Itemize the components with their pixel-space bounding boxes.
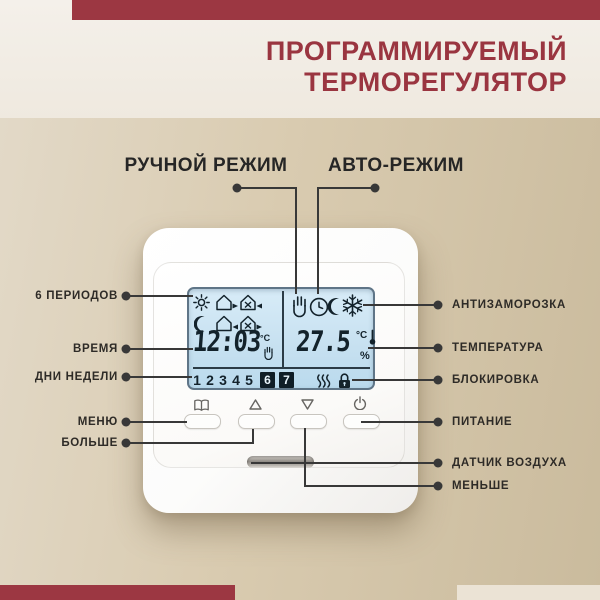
callout-dot-decrease <box>434 482 443 491</box>
lcd-display: 12:03 °C 27.5 °C <box>187 287 375 390</box>
percent-sign: % <box>360 350 370 362</box>
label-lock: БЛОКИРОВКА <box>452 373 539 387</box>
page-title-line2: ТЕРМОРЕГУЛЯТОР <box>266 67 567 98</box>
callout-dot-antifreeze <box>434 301 443 310</box>
thermometer-icon <box>369 329 376 346</box>
callout-dot-air-sensor <box>434 459 443 468</box>
lock-icon <box>337 372 352 389</box>
house-enter-x-icon <box>239 294 263 311</box>
bottom-cream-bar <box>457 585 600 600</box>
label-decrease: МЕНЬШЕ <box>452 479 509 493</box>
callout-dot-manual-mode <box>233 184 242 193</box>
time-readout: 12:03 <box>192 326 262 357</box>
label-weekdays: ДНИ НЕДЕЛИ <box>35 370 118 384</box>
heating-waves-icon <box>315 373 331 388</box>
increase-button[interactable] <box>238 414 275 429</box>
callout-dot-menu <box>122 418 131 427</box>
weekday-5: 5 <box>243 372 255 388</box>
callout-dot-6-periods <box>122 292 131 301</box>
label-menu: МЕНЮ <box>78 415 118 429</box>
label-time: ВРЕМЯ <box>73 342 118 356</box>
callout-dot-weekdays <box>122 373 131 382</box>
arrow-up-icon <box>249 399 262 410</box>
house-exit-icon <box>215 294 239 311</box>
label-auto-mode: АВТО-РЕЖИМ <box>296 155 496 177</box>
callout-dot-time <box>122 345 131 354</box>
callout-dot-increase <box>122 439 131 448</box>
lcd-divider-line <box>282 291 284 367</box>
infographic-page: { "header": { "title_line1": "ПРОГРАММИР… <box>0 0 600 600</box>
air-sensor-slot <box>247 456 314 468</box>
weekday-6-active: 6 <box>260 372 275 388</box>
weekday-2: 2 <box>204 372 216 388</box>
time-unit: °C <box>260 333 270 343</box>
lcd-separator-line <box>193 367 370 369</box>
snowflake-antifreeze-icon <box>341 294 364 317</box>
page-title: ПРОГРАММИРУЕМЫЙ ТЕРМОРЕГУЛЯТОР <box>266 36 567 98</box>
label-temperature: ТЕМПЕРАТУРА <box>452 341 543 355</box>
page-title-line1: ПРОГРАММИРУЕМЫЙ <box>266 36 567 67</box>
label-antifreeze: АНТИЗАМОРОЗКА <box>452 298 566 312</box>
arrow-down-icon <box>301 399 314 410</box>
weekday-1: 1 <box>191 372 203 388</box>
sun-icon <box>193 294 210 311</box>
temperature-readout: 27.5 <box>295 326 351 357</box>
hand-manual-icon <box>291 295 308 318</box>
clock-auto-icon <box>309 297 329 317</box>
weekday-3: 3 <box>217 372 229 388</box>
callout-dot-temperature <box>434 344 443 353</box>
label-6-periods: 6 ПЕРИОДОВ <box>35 289 118 303</box>
power-icon <box>353 396 367 410</box>
callout-dot-auto-mode <box>371 184 380 193</box>
callout-dot-lock <box>434 376 443 385</box>
hand-small-icon <box>263 346 274 360</box>
temperature-unit: °C <box>356 330 367 341</box>
top-red-bar <box>72 0 600 20</box>
label-increase: БОЛЬШЕ <box>61 436 118 450</box>
label-manual-mode: РУЧНОЙ РЕЖИМ <box>106 155 306 177</box>
menu-button[interactable] <box>184 414 221 429</box>
decrease-button[interactable] <box>290 414 327 429</box>
label-air-sensor: ДАТЧИК ВОЗДУХА <box>452 456 567 470</box>
callout-dot-power <box>434 418 443 427</box>
bottom-red-bar <box>0 585 235 600</box>
power-button[interactable] <box>343 414 380 429</box>
weekday-4: 4 <box>230 372 242 388</box>
menu-book-icon <box>193 399 210 412</box>
weekday-7-active: 7 <box>279 372 294 388</box>
label-power: ПИТАНИЕ <box>452 415 512 429</box>
